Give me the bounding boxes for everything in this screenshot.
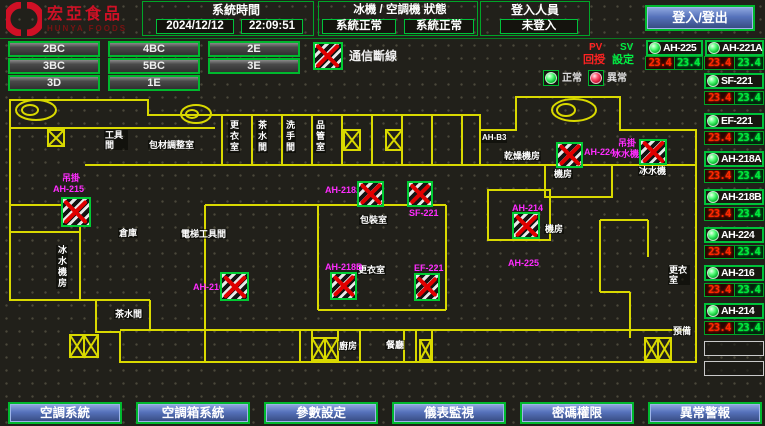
unit-row-ah218a[interactable]: AH-218A — [704, 151, 764, 167]
unit-icon-ah216[interactable] — [220, 272, 249, 301]
login-person-label: 登入人員 — [480, 3, 590, 17]
pv-value: 23.4 — [705, 322, 735, 334]
status-led-icon — [707, 267, 719, 279]
unit-values-ah221a: 23.4 23.4 — [704, 56, 764, 70]
plan-unit-label: AH-224 — [584, 147, 615, 157]
plan-unit-label: 吊掛 — [62, 173, 80, 183]
sv-value: 23.4 — [675, 57, 703, 69]
room-label: 茶水間 — [256, 120, 268, 153]
pv-value: 23.4 — [705, 170, 735, 182]
pv-value: 23.4 — [705, 57, 735, 69]
sv-legend-label: SV — [620, 42, 633, 53]
normal-legend-led-box — [543, 70, 559, 86]
nav-button-alarms[interactable]: 異常警報 — [648, 402, 762, 424]
floor-button-5bc[interactable]: 5BC — [108, 58, 200, 74]
unit-name: AH-218A — [721, 154, 761, 165]
status-led-icon — [707, 229, 719, 241]
unit-icon-ah224[interactable] — [556, 142, 583, 168]
empty-unit-slot — [704, 361, 764, 376]
status-led-icon — [707, 75, 719, 87]
pv-value: 23.4 — [705, 246, 735, 258]
company-logo: 宏亞食品 HUNYA FOODS — [6, 2, 127, 36]
sv-value: 23.4 — [735, 208, 764, 220]
system-time-label: 系統時間 — [186, 3, 286, 17]
room-label: 電梯工具間 — [180, 229, 227, 239]
feedback-legend-label: 回授 — [583, 55, 605, 66]
unit-row-sf221[interactable]: SF-221 — [704, 73, 764, 89]
unit-icon-ah218b[interactable] — [330, 272, 357, 300]
pv-value: 23.4 — [646, 57, 675, 69]
unit-icon-ah218a[interactable] — [357, 181, 384, 207]
unit-name: AH-214 — [721, 306, 754, 317]
unit-row-ef221[interactable]: EF-221 — [704, 113, 764, 129]
status-led-icon — [708, 42, 720, 54]
unit-row-ah224[interactable]: AH-224 — [704, 227, 764, 243]
empty-unit-slot — [704, 341, 764, 356]
room-label: AH-B3 — [481, 133, 507, 143]
unit-values-ah225: 23.4 23.4 — [645, 56, 703, 70]
unit-values-ah216: 23.4 23.4 — [704, 283, 764, 297]
unit-icon-ef221[interactable] — [414, 273, 440, 301]
nav-button-ac-system[interactable]: 空調系統 — [8, 402, 122, 424]
room-label: 機房 — [544, 224, 564, 234]
unit-values-ah214: 23.4 23.4 — [704, 321, 764, 335]
setpoint-legend-label: 設定 — [612, 55, 634, 66]
unit-name: AH-225 — [663, 43, 696, 54]
floor-button-2bc[interactable]: 2BC — [8, 41, 100, 57]
logo-title: 宏亞食品 — [47, 6, 127, 24]
system-date-value: 2024/12/12 — [156, 19, 234, 34]
sv-value: 23.4 — [735, 132, 764, 144]
room-label: 餐廳 — [385, 340, 405, 350]
unit-name: AH-224 — [721, 230, 754, 241]
nav-button-parameters[interactable]: 參數設定 — [264, 402, 378, 424]
plan-unit-label: 吊掛 — [618, 138, 636, 148]
comm-loss-legend-icon — [313, 42, 343, 70]
plan-unit-label: 冰水機 — [612, 149, 639, 159]
plan-unit-label: AH-218B — [325, 262, 363, 272]
unit-name: EF-221 — [721, 116, 752, 127]
room-label: 冰水機房 — [56, 245, 68, 289]
sv-value: 23.4 — [735, 284, 764, 296]
room-label: 茶水間 — [114, 309, 143, 319]
unit-name: AH-216 — [721, 268, 754, 279]
header-divider — [0, 38, 765, 39]
unit-values-ef221: 23.4 23.4 — [704, 131, 764, 145]
sv-value: 23.4 — [735, 246, 764, 258]
nav-button-ahu-system[interactable]: 空調箱系統 — [136, 402, 250, 424]
floor-button-1e[interactable]: 1E — [108, 75, 200, 91]
pv-value: 23.4 — [705, 208, 735, 220]
room-label: 機房 — [553, 169, 573, 179]
room-label: 廚房 — [338, 341, 358, 351]
floor-button-3d[interactable]: 3D — [8, 75, 100, 91]
room-label: 工具間 — [104, 130, 128, 150]
pv-legend-label: PV — [589, 42, 602, 53]
login-logout-button[interactable]: 登入/登出 — [645, 5, 755, 31]
status-led-icon — [649, 42, 661, 54]
normal-legend-label: 正常 — [562, 73, 582, 84]
nav-button-meters[interactable]: 儀表監視 — [392, 402, 506, 424]
sv-value: 23.4 — [735, 322, 764, 334]
unit-icon-ah214[interactable] — [512, 212, 540, 239]
status-led-icon — [707, 153, 719, 165]
unit-row-ah214[interactable]: AH-214 — [704, 303, 764, 319]
abnormal-legend-led-box — [588, 70, 604, 86]
chiller-status-value: 系統正常 — [322, 19, 396, 34]
unit-row-ah221a[interactable]: AH-221A — [705, 40, 764, 56]
unit-name: SF-221 — [721, 76, 752, 87]
ahu-status-value: 系統正常 — [404, 19, 474, 34]
plan-unit-label: AH-225 — [508, 258, 539, 268]
status-led-icon — [707, 191, 719, 203]
room-label: 倉庫 — [118, 228, 138, 238]
status-led-icon — [707, 115, 719, 127]
plan-unit-label: AH-215 — [53, 184, 84, 194]
room-label: 乾燥機房 — [503, 151, 541, 161]
login-status-value: 未登入 — [500, 19, 578, 34]
floor-button-2e[interactable]: 2E — [208, 41, 300, 57]
unit-row-ah225[interactable]: AH-225 — [646, 40, 703, 56]
room-label: 冰水機 — [638, 166, 667, 176]
system-time-value: 22:09:51 — [241, 19, 303, 34]
unit-values-ah218b: 23.4 23.4 — [704, 207, 764, 221]
unit-icon-ah215[interactable] — [61, 197, 91, 227]
machine-status-label: 冰機 / 空調機 狀態 — [322, 3, 478, 17]
unit-values-ah218a: 23.4 23.4 — [704, 169, 764, 183]
logo-subtitle: HUNYA FOODS — [47, 24, 127, 33]
unit-icon-chiller[interactable] — [639, 139, 667, 165]
abnormal-legend-label: 異常 — [607, 73, 627, 84]
room-label: 更衣室 — [228, 120, 240, 153]
floor-button-3e[interactable]: 3E — [208, 58, 300, 74]
plan-unit-label: EF-221 — [414, 263, 444, 273]
room-label: 包裝室 — [359, 215, 388, 225]
room-label: 更衣室 — [668, 265, 690, 285]
unit-values-sf221: 23.4 23.4 — [704, 91, 764, 105]
sv-value: 23.4 — [735, 92, 764, 104]
floor-button-4bc[interactable]: 4BC — [108, 41, 200, 57]
room-label: 洗手間 — [284, 120, 296, 153]
unit-row-ah216[interactable]: AH-216 — [704, 265, 764, 281]
sv-value: 23.4 — [735, 57, 764, 69]
room-label: 預備 — [672, 326, 692, 336]
room-label: 包材調整室 — [148, 140, 195, 150]
floor-button-3bc[interactable]: 3BC — [8, 58, 100, 74]
unit-name: AH-218B — [721, 192, 761, 203]
logo-mark-icon — [6, 2, 42, 36]
plan-unit-label: SF-221 — [409, 208, 439, 218]
hmi-screen: 宏亞食品 HUNYA FOODS 系統時間 2024/12/12 22:09:5… — [0, 0, 765, 426]
nav-button-password[interactable]: 密碼權限 — [520, 402, 634, 424]
unit-values-ah224: 23.4 23.4 — [704, 245, 764, 259]
pv-value: 23.4 — [705, 132, 735, 144]
pv-value: 23.4 — [705, 284, 735, 296]
unit-name: AH-221A — [722, 43, 762, 54]
red-led-icon — [590, 72, 602, 84]
comm-loss-legend-label: 通信斷線 — [349, 51, 397, 62]
green-led-icon — [545, 72, 557, 84]
unit-row-ah218b[interactable]: AH-218B — [704, 189, 764, 205]
room-label: 品管室 — [314, 120, 326, 153]
status-led-icon — [707, 305, 719, 317]
unit-icon-sf221[interactable] — [407, 181, 433, 207]
pv-value: 23.4 — [705, 92, 735, 104]
sv-value: 23.4 — [735, 170, 764, 182]
